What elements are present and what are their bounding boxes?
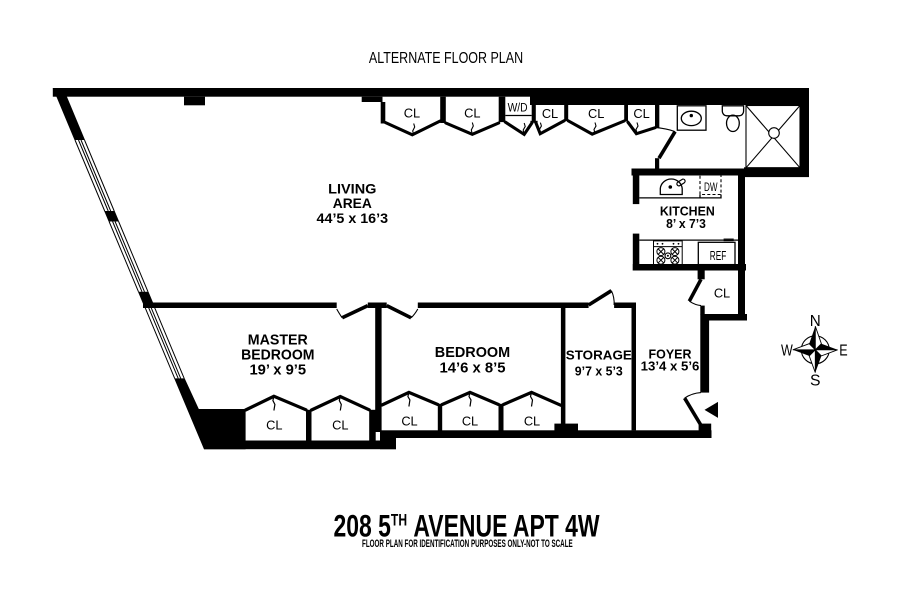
svg-text:W: W	[781, 343, 793, 360]
svg-text:ALTERNATE FLOOR PLAN: ALTERNATE FLOOR PLAN	[369, 49, 523, 67]
svg-text:14’6 x 8’5: 14’6 x 8’5	[439, 359, 505, 376]
svg-text:AREA: AREA	[333, 196, 372, 211]
svg-text:DW: DW	[704, 180, 718, 194]
svg-text:CL: CL	[464, 106, 480, 121]
svg-text:CL: CL	[633, 106, 649, 121]
svg-text:44’5 x 16’3: 44’5 x 16’3	[317, 211, 389, 226]
svg-text:13’4 x 5’6: 13’4 x 5’6	[641, 359, 700, 373]
svg-text:9’7 x 5’3: 9’7 x 5’3	[575, 364, 623, 378]
svg-text:CL: CL	[332, 418, 348, 433]
svg-text:REF: REF	[710, 248, 727, 263]
svg-text:STORAGE: STORAGE	[566, 348, 632, 362]
svg-text:CL: CL	[524, 414, 540, 429]
svg-text:CL: CL	[401, 414, 417, 429]
svg-text:19’ x 9’5: 19’ x 9’5	[249, 362, 306, 379]
svg-text:FLOOR PLAN FOR IDENTIFICATION: FLOOR PLAN FOR IDENTIFICATION PURPOSES O…	[362, 537, 573, 549]
svg-text:S: S	[810, 372, 821, 389]
svg-text:LIVING: LIVING	[328, 181, 376, 196]
svg-text:CL: CL	[714, 286, 730, 301]
svg-text:CL: CL	[462, 414, 478, 429]
svg-text:8’ x 7’3: 8’ x 7’3	[666, 216, 706, 231]
svg-text:W/D: W/D	[508, 103, 528, 115]
svg-text:CL: CL	[588, 106, 604, 121]
svg-text:CL: CL	[542, 106, 558, 121]
svg-text:N: N	[810, 313, 821, 330]
svg-text:CL: CL	[404, 106, 420, 121]
svg-text:E: E	[839, 343, 847, 360]
svg-text:CL: CL	[266, 418, 282, 433]
